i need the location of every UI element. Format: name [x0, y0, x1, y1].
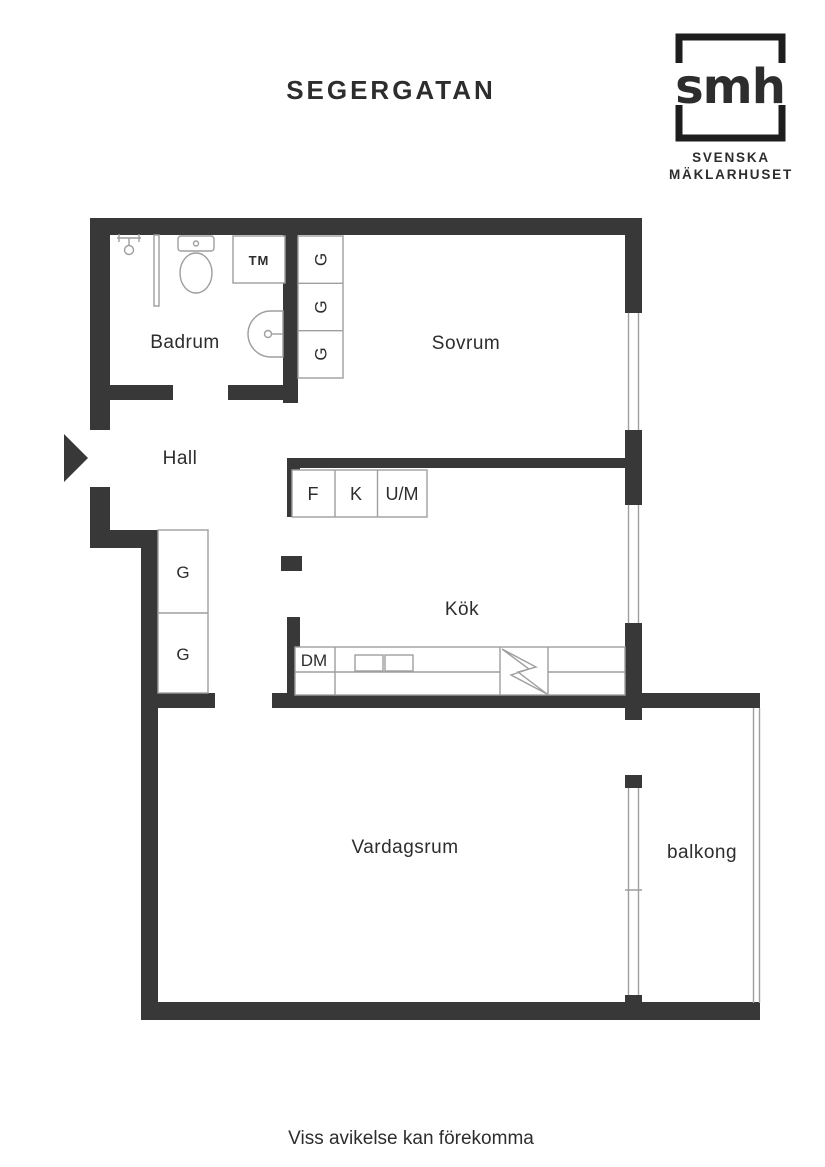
- label-wardrobe-3: G: [312, 347, 331, 360]
- wall-sovrum-kok-divider: [287, 458, 625, 468]
- disclaimer-text: Viss avikelse kan förekomma: [288, 1128, 534, 1149]
- label-wardrobe-2: G: [312, 300, 331, 313]
- wardrobe-stack-hall: [158, 530, 208, 693]
- floor-plan-canvas: SEGERGATAN smh SVENSKA MÄKLARHUSET: [0, 0, 825, 1167]
- wall-bathroom-bottom-right: [228, 385, 298, 400]
- wall-left-upper: [90, 218, 110, 430]
- wall-livingroom-top-left: [143, 693, 215, 708]
- kitchen-counter: [295, 647, 625, 695]
- wall-east-seg2: [625, 430, 642, 505]
- window-kok: [629, 505, 639, 623]
- wall-livingroom-west: [141, 530, 158, 1020]
- sink-bowl-right: [385, 655, 413, 671]
- room-label-balkong: balkong: [667, 842, 737, 863]
- floor-plan-page: SEGERGATAN smh SVENSKA MÄKLARHUSET: [0, 0, 825, 1167]
- logo-line2: MÄKLARHUSET: [669, 167, 793, 182]
- room-label-badrum: Badrum: [150, 332, 220, 353]
- page-title: SEGERGATAN: [286, 75, 496, 105]
- label-freezer: K: [350, 484, 362, 504]
- label-wardrobe-1: G: [312, 253, 331, 266]
- room-label-kok: Kök: [445, 599, 479, 620]
- label-wardrobe-4: G: [176, 563, 189, 582]
- wall-east-seg1: [625, 235, 642, 313]
- wall-livingroom-east-stub2: [625, 995, 642, 1020]
- toilet-icon: [178, 236, 214, 293]
- wall-kitchen-west-pillar: [281, 556, 302, 571]
- label-dishwasher: DM: [301, 651, 327, 670]
- windows: [625, 313, 760, 1003]
- shower-icon: [117, 234, 141, 255]
- label-fridge: F: [308, 484, 319, 504]
- wall-top: [90, 218, 642, 235]
- wall-livingroom-east-stub1: [625, 775, 642, 788]
- label-oven-micro: U/M: [386, 484, 419, 504]
- room-label-vardagsrum: Vardagsrum: [351, 837, 458, 858]
- room-label-hall: Hall: [163, 448, 198, 469]
- wall-bathroom-bottom-left: [108, 385, 173, 400]
- entrance-arrow-icon: [64, 434, 88, 482]
- balcony-railing: [754, 708, 760, 1003]
- label-washing-machine: TM: [249, 253, 270, 268]
- label-wardrobe-5: G: [176, 645, 189, 664]
- window-sovrum: [629, 313, 639, 430]
- logo-monogram: smh: [675, 59, 785, 115]
- room-label-sovrum: Sovrum: [432, 333, 500, 354]
- sink-bowl-left: [355, 655, 383, 671]
- wall-balcony-top: [642, 693, 760, 708]
- window-vardagsrum: [625, 788, 642, 995]
- wall-bottom: [141, 1002, 760, 1020]
- smh-logo: smh SVENSKA MÄKLARHUSET: [666, 37, 796, 182]
- logo-line1: SVENSKA: [692, 150, 770, 165]
- sink-icon: [248, 311, 283, 357]
- shower-screen: [154, 235, 159, 306]
